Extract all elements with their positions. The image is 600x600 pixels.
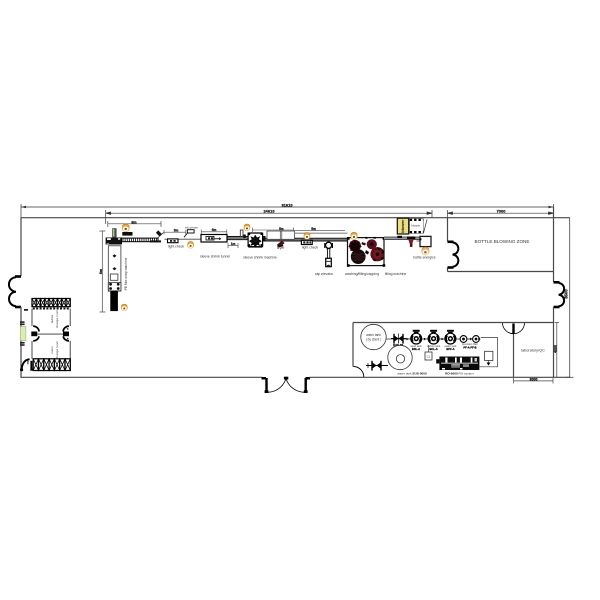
svg-text:washing/filling/capping: washing/filling/capping [345, 272, 379, 276]
svg-text:8m: 8m [99, 269, 103, 274]
svg-text:light check: light check [302, 245, 318, 249]
svg-text:3m: 3m [174, 229, 179, 233]
svg-text:24610: 24610 [263, 209, 275, 214]
svg-text:water tank SUS-5000: water tank SUS-5000 [397, 372, 427, 376]
svg-text:laboratory/QC: laboratory/QC [521, 349, 545, 353]
svg-text:RO-6000 RO system: RO-6000 RO system [445, 372, 474, 376]
svg-text:5m: 5m [311, 227, 316, 231]
svg-text:sleeve shrink tunnel: sleeve shrink tunnel [200, 255, 230, 259]
svg-text:mens: mens [50, 346, 54, 354]
svg-text:dryer: dryer [277, 246, 285, 250]
svg-text:31610: 31610 [281, 203, 293, 208]
svg-text:filling machine: filling machine [385, 272, 407, 276]
svg-text:7000: 7000 [497, 209, 507, 214]
svg-text:ladies: ladies [50, 315, 54, 324]
svg-text:CL: CL [427, 355, 431, 359]
svg-text:light check: light check [168, 244, 184, 248]
svg-text:cap elevator: cap elevator [315, 272, 334, 276]
svg-text:1m: 1m [231, 242, 236, 246]
svg-text:bottle energize: bottle energize [413, 256, 435, 260]
svg-text:8m: 8m [131, 220, 136, 224]
svg-text:PF-A PF-B: PF-A PF-B [463, 346, 476, 350]
svg-text:ink printer: ink printer [185, 226, 198, 230]
svg-text:BOTTLE BLOWING ZONE: BOTTLE BLOWING ZONE [475, 239, 530, 244]
svg-text:blower: blower [411, 224, 420, 228]
svg-text:BPF-A: BPF-A [446, 347, 454, 351]
svg-text:4000: 4000 [554, 345, 558, 353]
svg-text:6m: 6m [212, 228, 217, 232]
svg-text:change room: change room [55, 310, 59, 328]
svg-text:BCL-A: BCL-A [429, 347, 437, 351]
svg-text:change room: change room [55, 341, 59, 359]
svg-text:water tank: water tank [366, 333, 381, 337]
svg-text:precision filter: precision filter [462, 342, 478, 346]
svg-text:blower: blower [400, 219, 405, 232]
svg-text:5m: 5m [279, 227, 284, 231]
svg-text:PE film wrap machine: PE film wrap machine [124, 257, 128, 290]
svg-text:sleeve shrink machine: sleeve shrink machine [243, 256, 277, 260]
svg-text:3000: 3000 [530, 377, 538, 381]
svg-text:( by client ): ( by client ) [366, 338, 382, 342]
svg-text:BSL-A: BSL-A [412, 347, 420, 351]
